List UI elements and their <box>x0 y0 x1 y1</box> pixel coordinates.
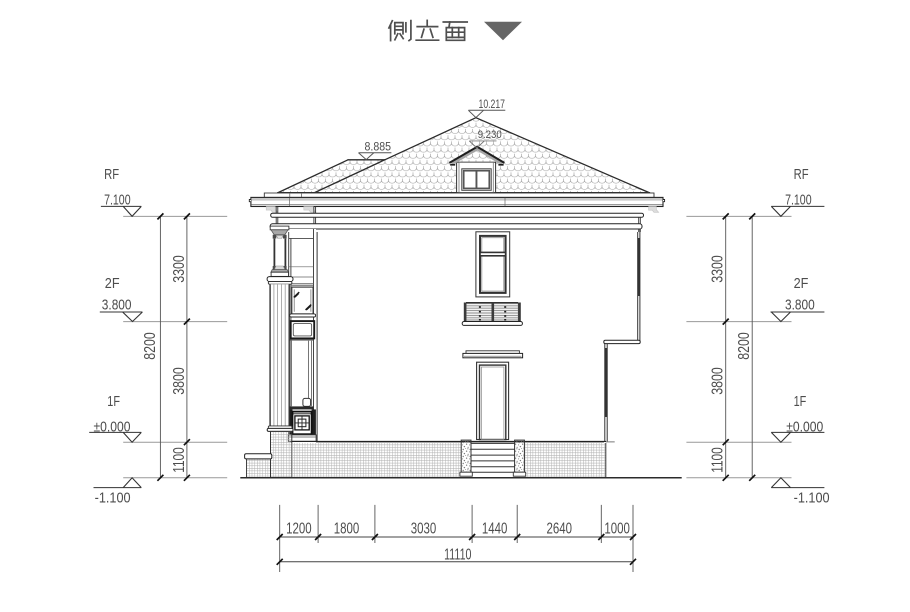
svg-text:3.800: 3.800 <box>785 298 815 314</box>
svg-text:2F: 2F <box>794 276 809 292</box>
svg-text:1100: 1100 <box>709 447 726 473</box>
svg-text:1800: 1800 <box>334 520 360 537</box>
svg-text:8200: 8200 <box>142 332 159 360</box>
svg-text:RF: RF <box>104 167 119 183</box>
svg-text:1F: 1F <box>794 394 807 410</box>
svg-text:3.800: 3.800 <box>102 298 132 314</box>
svg-text:8200: 8200 <box>736 332 753 360</box>
svg-text:2640: 2640 <box>546 520 572 537</box>
svg-text:±0.000: ±0.000 <box>786 419 823 435</box>
svg-text:3300: 3300 <box>171 255 188 283</box>
svg-text:1440: 1440 <box>482 520 508 537</box>
svg-text:1100: 1100 <box>171 447 188 473</box>
svg-text:1200: 1200 <box>286 520 312 537</box>
svg-text:±0.000: ±0.000 <box>94 419 131 435</box>
svg-text:11110: 11110 <box>444 546 471 563</box>
svg-text:10.217: 10.217 <box>479 99 506 111</box>
svg-text:3030: 3030 <box>411 520 437 537</box>
svg-text:3800: 3800 <box>171 367 188 395</box>
svg-text:3300: 3300 <box>709 255 726 283</box>
svg-text:1000: 1000 <box>604 520 630 537</box>
svg-text:1F: 1F <box>107 394 120 410</box>
svg-text:3800: 3800 <box>709 367 726 395</box>
svg-text:-1.100: -1.100 <box>794 491 830 507</box>
svg-text:9.230: 9.230 <box>478 129 502 141</box>
svg-text:2F: 2F <box>105 276 120 292</box>
svg-text:-1.100: -1.100 <box>95 491 131 507</box>
svg-text:RF: RF <box>794 167 809 183</box>
svg-text:8.885: 8.885 <box>365 141 392 153</box>
